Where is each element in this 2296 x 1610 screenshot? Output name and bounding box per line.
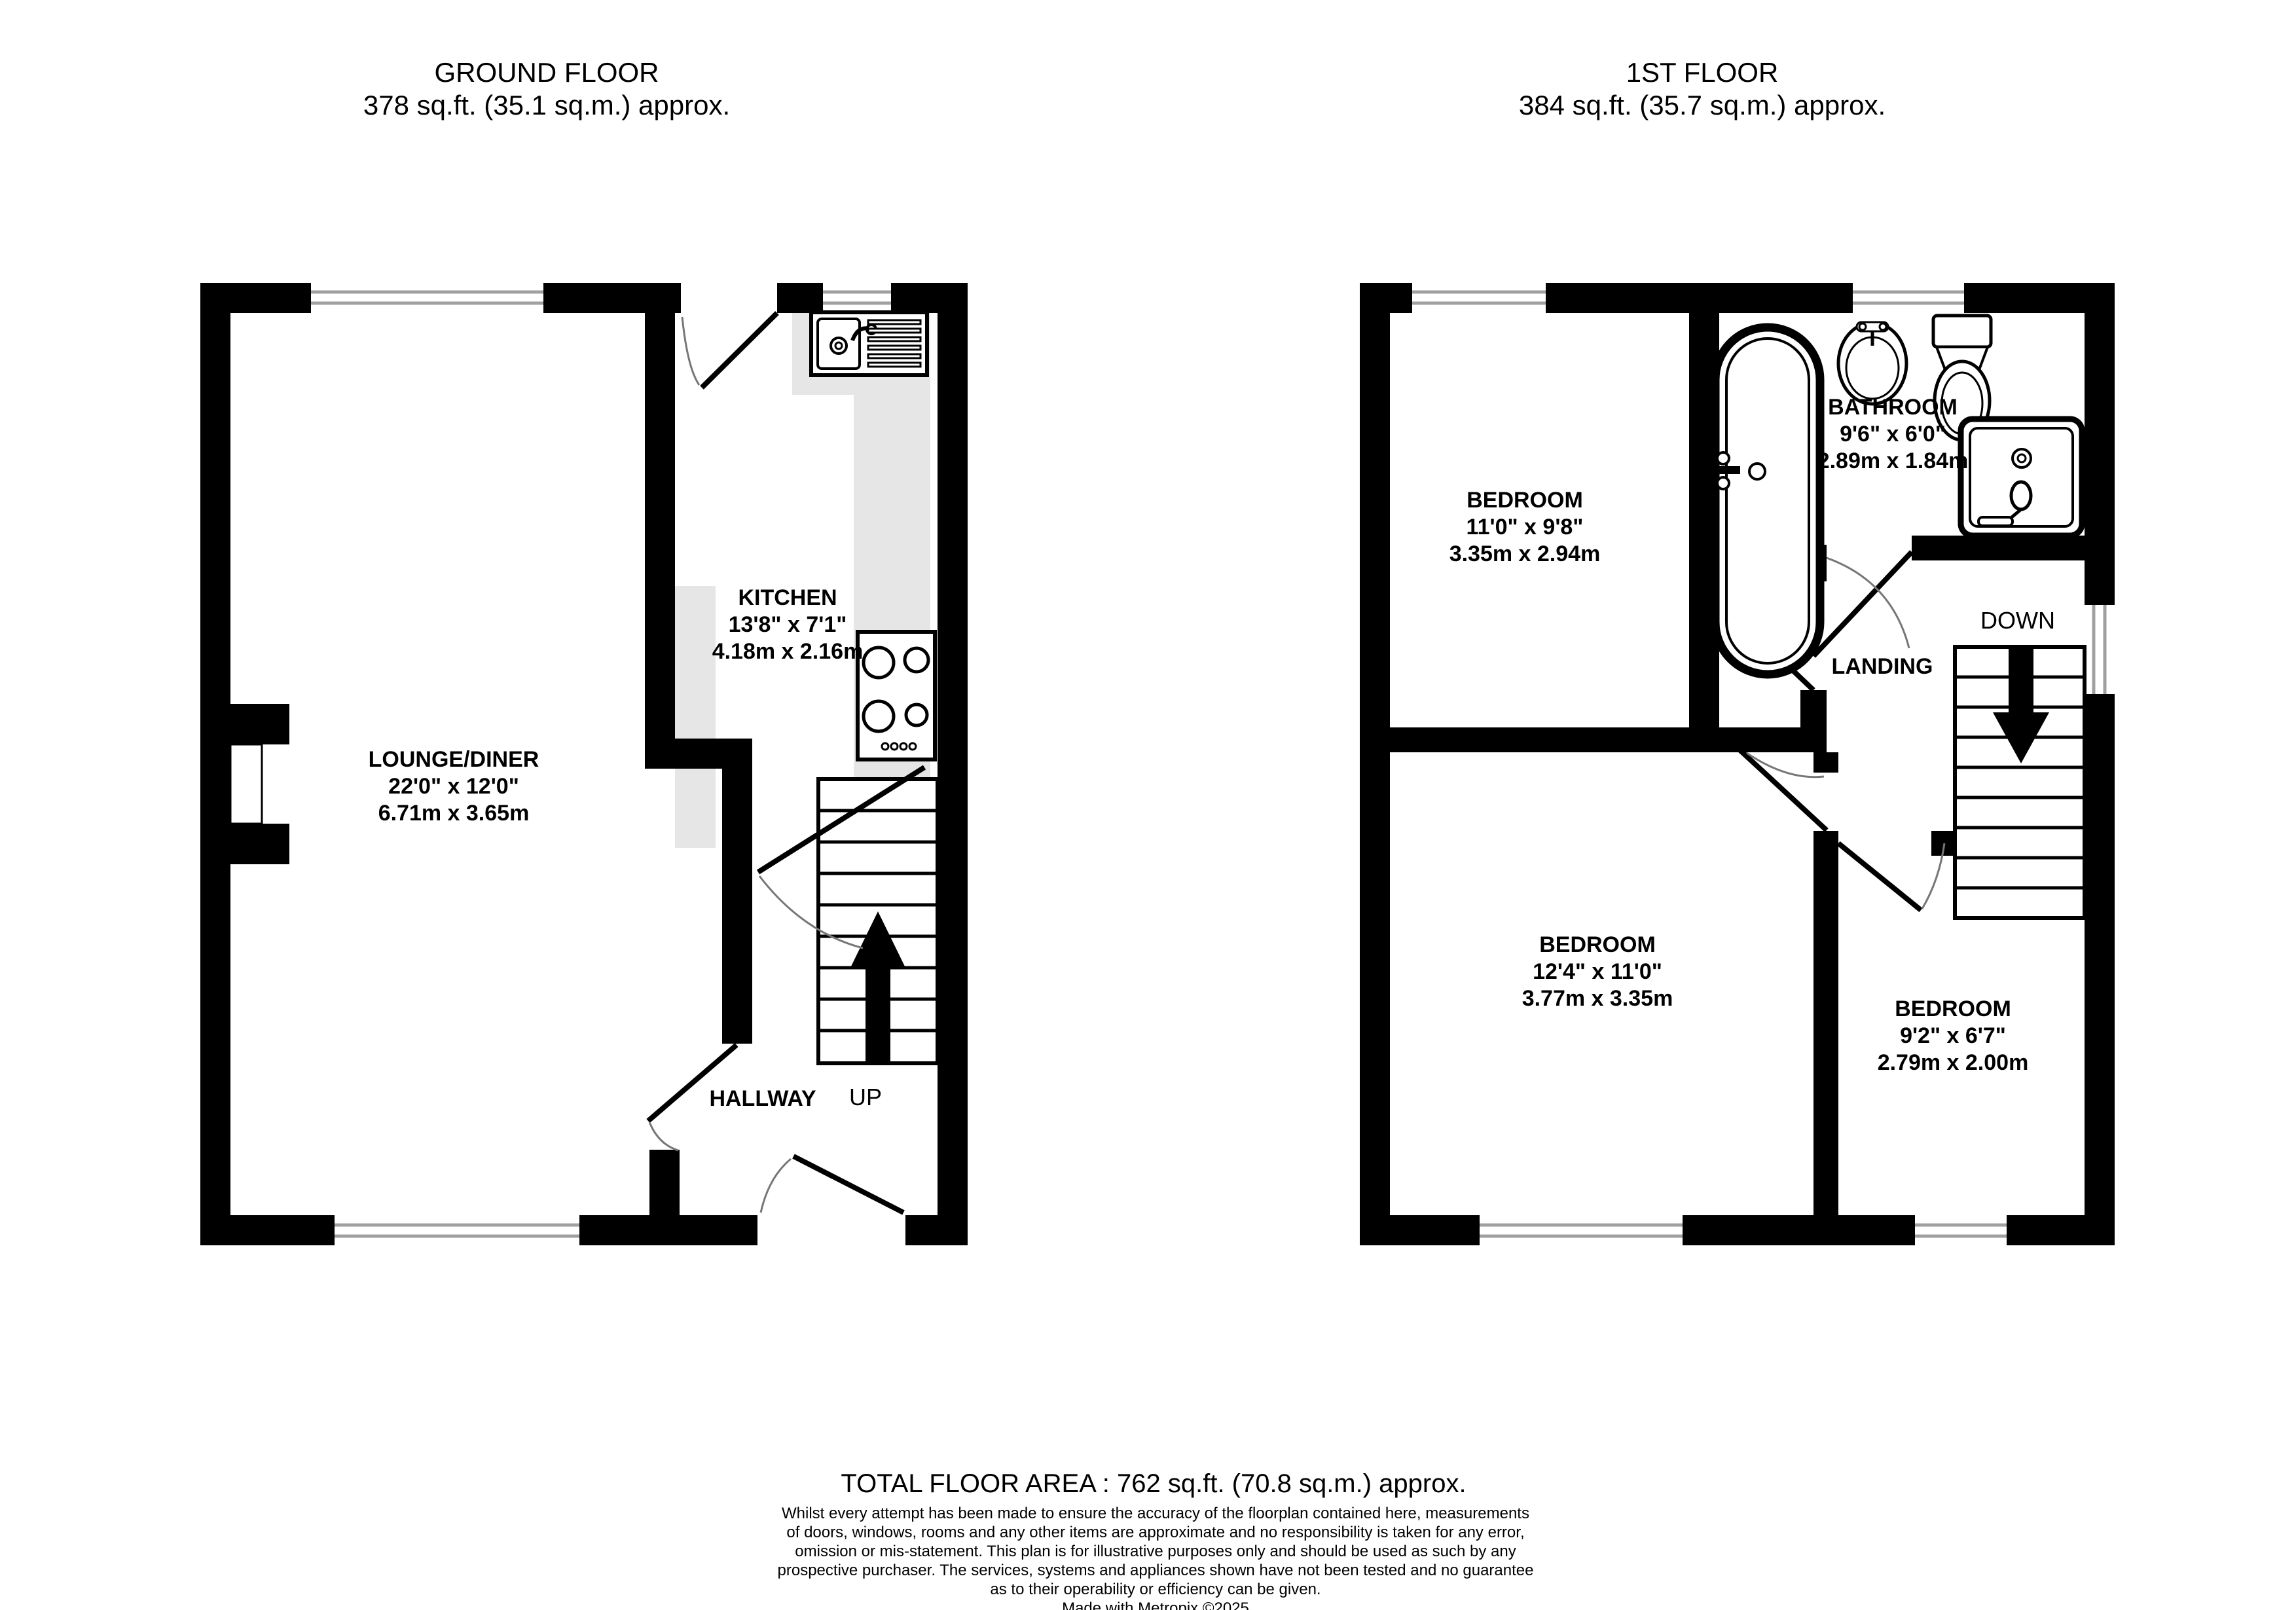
floorplan-page: GROUND FLOOR 378 sq.ft. (35.1 sq.m.) app… — [0, 0, 2296, 1610]
room-label-bedroom1: BEDROOM 11'0" x 9'8" 3.35m x 2.94m — [1449, 487, 1601, 568]
first-floor-name: 1ST FLOOR — [1519, 56, 1886, 89]
room-label-lounge: LOUNGE/DINER 22'0" x 12'0" 6.71m x 3.65m — [369, 746, 539, 827]
total-floor-area: TOTAL FLOOR AREA : 762 sq.ft. (70.8 sq.m… — [841, 1469, 1466, 1499]
basin-icon — [1838, 322, 1906, 404]
stairs-down-label: DOWN — [1980, 608, 2055, 634]
room-label-landing: LANDING — [1832, 653, 1933, 680]
metropix-credit: Made with Metropix ©2025 — [778, 1599, 1534, 1610]
first-floor-plan — [1360, 283, 2115, 1245]
room-label-bedroom3: BEDROOM 9'2" x 6'7" 2.79m x 2.00m — [1878, 996, 2029, 1076]
room-label-kitchen: KITCHEN 13'8" x 7'1" 4.18m x 2.16m — [712, 585, 864, 665]
ground-floor-name: GROUND FLOOR — [363, 56, 730, 89]
ground-floor-area: 378 sq.ft. (35.1 sq.m.) approx. — [363, 89, 730, 122]
stairs-down — [1955, 647, 2085, 918]
floorplan-graphics — [0, 0, 2296, 1610]
stairs-up-label: UP — [849, 1084, 882, 1110]
hob-icon — [858, 632, 935, 759]
shower-icon — [1961, 419, 2082, 536]
ground-floor-title: GROUND FLOOR 378 sq.ft. (35.1 sq.m.) app… — [363, 56, 730, 122]
bathtub-icon — [1715, 327, 1820, 674]
room-label-bathroom: BATHROOM 9'6" x 6'0" 2.89m x 1.84m — [1817, 394, 1969, 475]
room-label-hallway: HALLWAY — [709, 1086, 816, 1112]
first-floor-area: 384 sq.ft. (35.7 sq.m.) approx. — [1519, 89, 1886, 122]
kitchen-sink-icon — [811, 312, 927, 375]
room-label-bedroom2: BEDROOM 12'4" x 11'0" 3.77m x 3.35m — [1522, 932, 1673, 1012]
first-floor-title: 1ST FLOOR 384 sq.ft. (35.7 sq.m.) approx… — [1519, 56, 1886, 122]
disclaimer-text: Whilst every attempt has been made to en… — [778, 1504, 1534, 1610]
chimney-recess — [230, 744, 262, 824]
